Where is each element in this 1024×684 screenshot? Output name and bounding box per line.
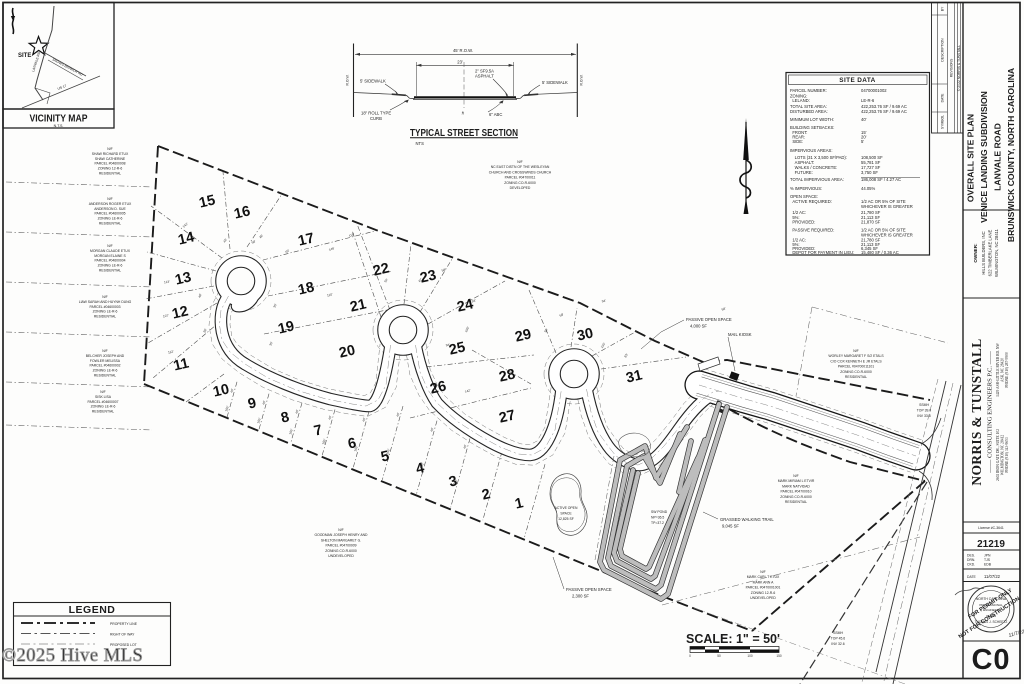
svg-text:5' SIDEWALK: 5' SIDEWALK [360,79,386,84]
svg-text:MINIMUM LOT WIDTH:: MINIMUM LOT WIDTH: [790,117,834,122]
svg-text:RESIDENTIAL: RESIDENTIAL [92,410,114,414]
svg-text:GOODMAN JOSEPH HENRY AND: GOODMAN JOSEPH HENRY AND [314,533,368,537]
svg-text:RESIDENTIAL: RESIDENTIAL [99,222,121,226]
svg-text:100: 100 [747,654,753,658]
svg-text:ZONING LE-R-6: ZONING LE-R-6 [93,310,118,314]
svg-text:License #C-3641: License #C-3641 [978,526,1004,530]
svg-text:PROVIDED:: PROVIDED: [790,220,815,225]
svg-text:DRN.: DRN. [967,558,975,562]
svg-text:PARCEL #04700011: PARCEL #04700011 [505,176,536,180]
svg-text:PARCEL #04600004: PARCEL #04600004 [94,259,125,263]
svg-text:5' SIDEWALK: 5' SIDEWALK [542,80,568,85]
svg-text:IMPERVIOUS AREAS:: IMPERVIOUS AREAS: [790,148,833,153]
svg-text:BELCHER JOSEPH AND: BELCHER JOSEPH AND [86,354,125,358]
svg-text:NORRIS & TUNSTALL: NORRIS & TUNSTALL [969,338,984,485]
svg-text:MARK ANN A: MARK ANN A [753,580,774,584]
svg-text:MORGAN ELAINE S: MORGAN ELAINE S [94,254,126,258]
svg-text:DATE: DATE [941,93,945,103]
svg-text:9,045 SF: 9,045 SF [722,524,739,529]
svg-text:SW POND: SW POND [651,510,668,514]
svg-text:PASSIVE OPEN SPACE: PASSIVE OPEN SPACE [686,317,732,322]
svg-text:RIGHT OF WAY: RIGHT OF WAY [110,632,135,636]
svg-text:—— CONSULTING ENGINEERS P.C. —: —— CONSULTING ENGINEERS P.C. —— [987,351,994,474]
svg-text:VICINITY MAP: VICINITY MAP [30,113,88,125]
svg-text:NTS: NTS [416,141,425,146]
svg-text:VENICE LANDING SUBDIVISION: VENICE LANDING SUBDIVISION [979,91,989,223]
svg-text:RESIDENTIAL: RESIDENTIAL [94,315,116,319]
svg-text:OWNER:: OWNER: [973,243,978,263]
svg-text:RESIDENTIAL: RESIDENTIAL [99,269,121,273]
svg-text:3,750 SF: 3,750 SF [861,170,878,175]
svg-text:ANDERSON ROGER ETUX: ANDERSON ROGER ETUX [89,202,132,206]
svg-text:PHONE (910) 287-5900: PHONE (910) 287-5900 [1005,352,1009,388]
svg-text:N.T.S.: N.T.S. [54,124,64,128]
svg-text:MORGAN CLAUDE ETUX: MORGAN CLAUDE ETUX [90,249,131,253]
svg-text:44.05%: 44.05% [861,186,875,191]
svg-text:ACTIVE OPEN: ACTIVE OPEN [555,506,578,510]
svg-text:DEVELOPED: DEVELOPED [510,186,531,190]
svg-text:LELAND:: LELAND: [790,98,810,103]
svg-text:PARCEL #04700009: PARCEL #04700009 [325,544,356,548]
svg-text:0: 0 [689,654,691,658]
svg-text:150: 150 [776,654,782,658]
svg-text:TOP 45.6: TOP 45.6 [831,636,846,640]
svg-text:SYMBOL: SYMBOL [941,115,945,129]
svg-text:N/F: N/F [102,349,107,353]
svg-text:TP=37.2: TP=37.2 [651,521,664,525]
svg-text:ℏ: ℏ [462,111,465,116]
svg-text:N/F: N/F [760,570,765,574]
svg-text:11/07/22: 11/07/22 [984,574,1001,579]
svg-text:BRUNSWICK COUNTY, NORTH CAROLI: BRUNSWICK COUNTY, NORTH CAROLINA [1006,68,1016,242]
svg-text:5': 5' [861,139,864,144]
svg-text:DESCRIPTION: DESCRIPTION [941,38,945,62]
svg-text:PASSIVE OPEN SPACE: PASSIVE OPEN SPACE [566,587,612,592]
svg-text:50: 50 [717,654,721,658]
svg-text:N/F: N/F [793,474,798,478]
svg-text:23': 23' [457,60,463,65]
svg-text:JPN: JPN [984,554,991,558]
svg-text:ZONING 12-R-6: ZONING 12-R-6 [751,591,776,595]
svg-text:N/F: N/F [107,244,112,248]
svg-text:CKD.: CKD. [967,563,975,567]
svg-text:MAIL KIOSK: MAIL KIOSK [728,332,752,337]
svg-text:© 2022 NORRIS & TUNSTALL: © 2022 NORRIS & TUNSTALL [957,45,961,91]
svg-text:CHURCH AND CROSSWINDS CHURCH: CHURCH AND CROSSWINDS CHURCH [489,170,552,174]
svg-text:ACTIVE REQUIRED:: ACTIVE REQUIRED: [790,199,832,204]
svg-text:SSMH: SSMH [919,403,929,407]
svg-text:45' R.O.W.: 45' R.O.W. [453,48,473,53]
svg-text:R.O.W.: R.O.W. [580,74,584,85]
svg-text:ZONING LE-R-6: ZONING LE-R-6 [98,217,123,221]
svg-text:ZONING CO-R-6000: ZONING CO-R-6000 [504,181,536,185]
svg-text:TOTAL IMPERVIOUS AREA:: TOTAL IMPERVIOUS AREA: [790,177,844,182]
svg-text:C/O COX KENNETH E JR ETALS: C/O COX KENNETH E JR ETALS [830,359,882,363]
svg-text:4,000 SF: 4,000 SF [690,324,707,329]
svg-text:SHAW CATHERINE: SHAW CATHERINE [95,157,126,161]
svg-text:ASPHALT: ASPHALT [475,74,494,79]
svg-text:% IMPERVIOUS:: % IMPERVIOUS: [790,186,822,191]
svg-text:ANDERSON D. SUE: ANDERSON D. SUE [94,207,126,211]
svg-text:LEGEND: LEGEND [69,604,116,616]
svg-text:FOWLER MELISSA: FOWLER MELISSA [90,359,121,363]
svg-text:WILMINGTON, NC 28411: WILMINGTON, NC 28411 [994,228,999,277]
svg-text:PARCEL #04600002: PARCEL #04600002 [89,364,120,368]
svg-text:422,253.76 SF / 9.69 AC: 422,253.76 SF / 9.69 AC [861,109,907,114]
svg-text:04700001002: 04700001002 [861,88,887,93]
svg-text:DATE: DATE [967,575,977,579]
svg-text:SITE DATA: SITE DATA [839,77,875,84]
svg-text:WHICHEVER IS GREATER: WHICHEVER IS GREATER [861,204,913,209]
svg-text:DES.: DES. [967,554,975,558]
svg-text:PARCEL #04600008: PARCEL #04600008 [94,162,125,166]
svg-text:N/F: N/F [107,147,112,151]
svg-text:PROPERTY LINE: PROPERTY LINE [110,622,138,626]
svg-text:SSMH: SSMH [833,631,843,635]
svg-text:ZONING LE-R-6: ZONING LE-R-6 [93,369,118,373]
svg-text:SITE: SITE [18,53,31,59]
svg-text:ZONING CO-R-6000: ZONING CO-R-6000 [780,495,812,499]
svg-text:1429 ASH-LITTLE RIVER RD. NW: 1429 ASH-LITTLE RIVER RD. NW [996,342,1000,396]
svg-text:18" ROLL TYPE: 18" ROLL TYPE [361,111,391,116]
svg-text:INV 32.6: INV 32.6 [831,642,844,646]
svg-text:PARCEL #04700010: PARCEL #04700010 [780,490,811,494]
svg-text:CURB: CURB [370,116,382,121]
svg-text:NP=36.5: NP=36.5 [651,516,664,520]
svg-text:PARCEL #0470001001: PARCEL #0470001001 [746,586,781,590]
svg-text:N/F: N/F [102,295,107,299]
svg-text:21,870 SF: 21,870 SF [861,220,881,225]
svg-text:RESIDENTIAL: RESIDENTIAL [785,500,807,504]
svg-text:SCALE: 1" = 50': SCALE: 1" = 50' [686,632,780,646]
svg-text:ZONING CO-R-6000: ZONING CO-R-6000 [325,549,357,553]
svg-text:N/F: N/F [338,528,343,532]
svg-text:TOP 39.0: TOP 39.0 [917,408,932,412]
svg-text:ZONING 12-R-6: ZONING 12-R-6 [98,167,123,171]
svg-text:SHAW RICHARD ETUX: SHAW RICHARD ETUX [92,152,129,156]
svg-text:PHONE (910) 343-9653: PHONE (910) 343-9653 [1005,437,1009,473]
svg-text:PARCEL #04600003: PARCEL #04600003 [89,305,120,309]
svg-text:TYPICAL STREET SECTION: TYPICAL STREET SECTION [410,127,518,139]
svg-text:SHELTON MARGARET G.: SHELTON MARGARET G. [321,538,361,542]
svg-text:PARCEL #04600007: PARCEL #04600007 [87,400,118,404]
svg-text:MARK MIRIAM L ETVIR: MARK MIRIAM L ETVIR [778,479,815,483]
svg-text:R.O.W.: R.O.W. [346,74,350,85]
svg-text:ZONING CO-R-6000: ZONING CO-R-6000 [840,370,872,374]
svg-text:PARCEL #04600005: PARCEL #04600005 [94,212,125,216]
svg-text:SISK LISA: SISK LISA [95,395,112,399]
svg-text:PASSIVE REQUIRED:: PASSIVE REQUIRED: [790,228,834,233]
svg-text:UNDEVELOPED: UNDEVELOPED [750,596,776,600]
svg-text:2,300 SF: 2,300 SF [572,594,589,599]
svg-text:6" ABC: 6" ABC [489,112,502,117]
svg-text:15,480 SF / 0.36 AC: 15,480 SF / 0.36 AC [861,250,899,255]
svg-text:WORLEY MARGARET F S/2 ETALS: WORLEY MARGARET F S/2 ETALS [828,354,884,358]
svg-text:622 TIMBERLAKE LANE: 622 TIMBERLAKE LANE [988,229,993,276]
svg-text:113': 113' [164,280,171,285]
svg-text:EDB: EDB [984,563,992,567]
svg-text:©2025 Hive MLS: ©2025 Hive MLS [2,646,143,666]
svg-text:ZONING LE-R-6: ZONING LE-R-6 [91,405,116,409]
svg-text:MARK NATVIDAD: MARK NATVIDAD [782,484,810,488]
svg-text:ZONING LE-R-6: ZONING LE-R-6 [98,264,123,268]
svg-text:21219: 21219 [977,539,1005,550]
svg-text:SPACE: SPACE [560,512,572,516]
svg-text:LE-R-6: LE-R-6 [861,98,875,103]
svg-text:RESIDENTIAL: RESIDENTIAL [99,172,121,176]
svg-text:OVERALL SITE PLAN: OVERALL SITE PLAN [966,114,976,202]
svg-text:12,825 SF: 12,825 SF [558,517,574,521]
svg-text:PARCEL #04700011101: PARCEL #04700011101 [838,365,874,369]
svg-text:GRASSED WALKING TRAIL: GRASSED WALKING TRAIL [720,517,774,522]
svg-text:N/F: N/F [100,390,105,394]
svg-text:N/F: N/F [517,160,522,164]
svg-text:RESIDENTIAL: RESIDENTIAL [94,374,116,378]
svg-text:HILLS BUILDERS, INC: HILLS BUILDERS, INC [981,231,986,274]
svg-text:DEPOT FOR PAYMENT IN LIEU:: DEPOT FOR PAYMENT IN LIEU: [790,250,854,255]
svg-text:FUTURE:: FUTURE: [790,170,813,175]
svg-text:N/F: N/F [853,349,858,353]
svg-text:PARCEL NUMBER:: PARCEL NUMBER: [790,88,827,93]
svg-text:REVISIONS: REVISIONS [950,58,954,77]
svg-text:40': 40' [861,117,867,122]
svg-text:SIDE:: SIDE: [790,139,803,144]
svg-text:BY: BY [941,6,945,11]
svg-text:LANVALE ROAD: LANVALE ROAD [993,123,1003,191]
svg-text:NC EAST DISTN OF THE WESLEYAN: NC EAST DISTN OF THE WESLEYAN [491,165,550,169]
svg-text:MARK CARL T ETUX: MARK CARL T ETUX [747,575,780,579]
svg-text:UNDEVELOPED: UNDEVELOPED [328,554,354,558]
svg-text:TJS: TJS [984,558,991,562]
svg-text:LIAW SARAH AND HUYNH DUNG: LIAW SARAH AND HUYNH DUNG [79,300,132,304]
svg-text:DISTURBED AREA:: DISTURBED AREA: [790,109,828,114]
svg-text:RESIDENTIAL: RESIDENTIAL [845,375,867,379]
svg-text:C0: C0 [971,644,1010,676]
svg-text:N/F: N/F [107,197,112,201]
